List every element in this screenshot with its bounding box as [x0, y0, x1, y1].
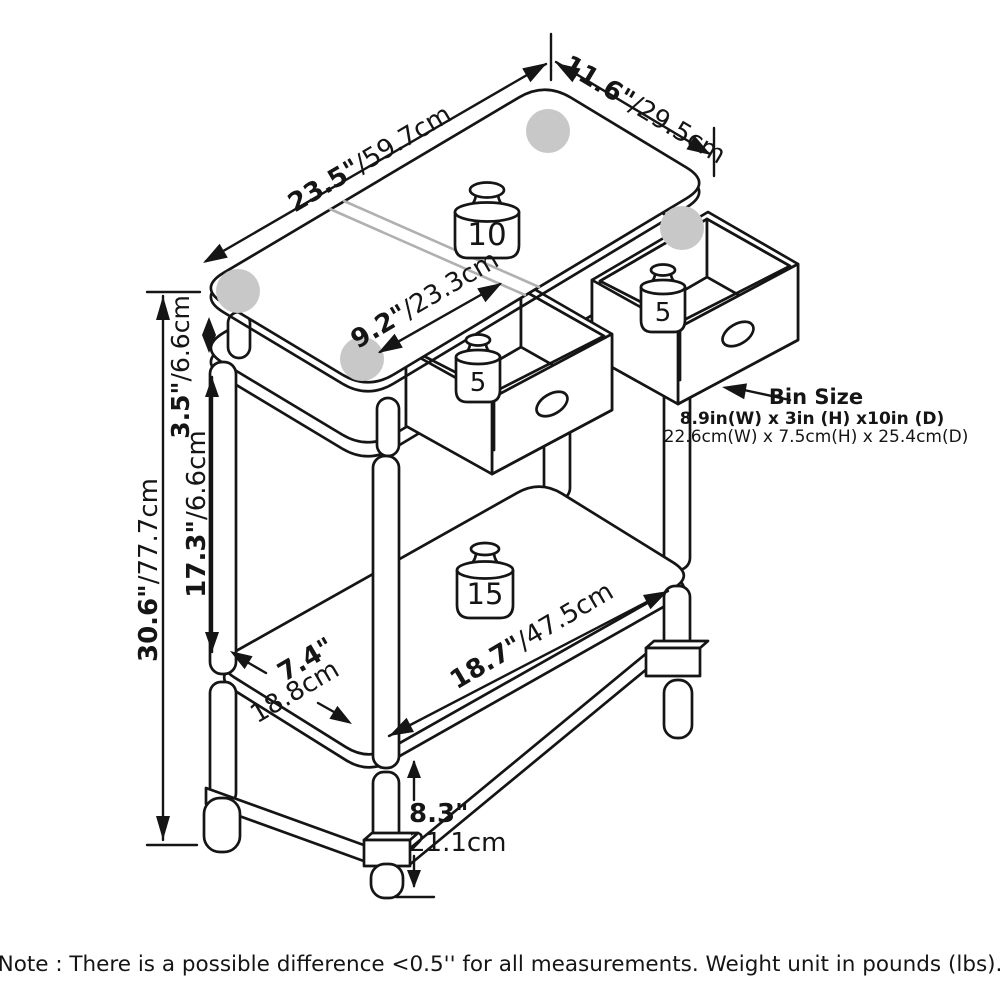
weight-knob	[470, 183, 504, 198]
dim-shelf-clearance: 8.3" 21.1cm	[396, 760, 507, 897]
weight-knob	[651, 265, 675, 276]
bin-size-inches: 8.9in(W) x 3in (H) x10in (D)	[680, 409, 945, 429]
weight-body-top	[641, 280, 685, 294]
front-foot	[371, 864, 403, 898]
suction-pad	[660, 206, 704, 250]
product-dimension-diagram: 10 5 5 15	[0, 0, 1000, 1000]
suction-pad	[216, 269, 260, 313]
suction-pad	[526, 109, 570, 153]
dim-mid-height-label: 17.3"/6.6cm	[182, 430, 212, 597]
left-leg-upper	[210, 362, 236, 674]
arrowhead	[203, 244, 228, 263]
arrowhead	[407, 760, 421, 778]
left-foot	[204, 798, 240, 852]
bin-size-callout: Bin Size 8.9in(W) x 3in (H) x10in (D) 22…	[664, 383, 969, 447]
measurement-note: Note : There is a possible difference <0…	[0, 952, 1000, 977]
bin-size-title: Bin Size	[769, 385, 863, 409]
front-leg-upper	[373, 456, 399, 768]
weight-body-top	[456, 350, 500, 364]
right-bar-block	[646, 648, 700, 676]
front-bar-block	[364, 840, 410, 866]
weight-right-bin-label: 5	[655, 298, 672, 328]
weight-knob	[471, 543, 499, 555]
arrowhead	[156, 816, 170, 840]
arrowhead	[407, 870, 421, 888]
weight-left-bin-label: 5	[470, 368, 487, 398]
dim-shelf-clearance-label-cm: 21.1cm	[409, 828, 507, 858]
dim-overall-height-label: 30.6"/77.7cm	[134, 478, 164, 662]
weight-shelf-label: 15	[467, 577, 504, 611]
right-foot	[664, 680, 692, 738]
weight-body-top	[457, 562, 513, 579]
arrowhead	[722, 383, 747, 399]
glass-post-left	[228, 312, 250, 358]
glass-post-front	[377, 398, 399, 456]
dim-shelf-clearance-label-in: 8.3"	[409, 799, 469, 829]
left-leg-lower	[210, 682, 236, 804]
shelf-top-face	[224, 487, 684, 755]
dim-glass-gap: 3.5"/6.6cm	[166, 295, 216, 439]
bin-size-cm: 22.6cm(W) x 7.5cm(H) x 25.4cm(D)	[664, 427, 969, 447]
weight-knob	[466, 335, 490, 346]
dim-glass-gap-label: 3.5"/6.6cm	[166, 295, 195, 439]
arrowhead	[202, 317, 216, 335]
arrowhead	[522, 63, 547, 82]
